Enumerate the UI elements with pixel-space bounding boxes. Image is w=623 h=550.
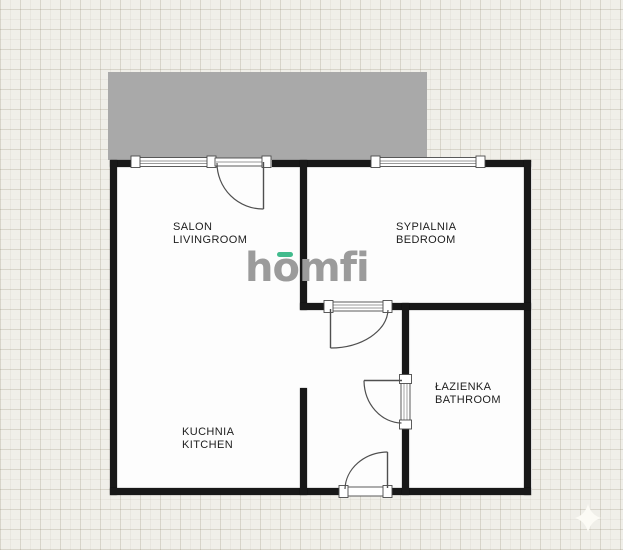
floor-plan-canvas: SALON LIVINGROOM SYPIALNIA BEDROOM ŁAZIE… [0, 0, 623, 550]
wall-left [110, 160, 117, 495]
room-name-en: KITCHEN [182, 439, 234, 452]
room-label-livingroom: SALON LIVINGROOM [173, 221, 247, 246]
wall-bedroom-bottom-left [300, 303, 325, 310]
homfi-logo-watermark: homfi [245, 244, 385, 296]
wall-kitchen-hall-divider [300, 388, 307, 495]
wall-right [524, 160, 531, 495]
wall-bedroom-bottom-right [392, 303, 531, 310]
room-name-pl: SYPIALNIA [396, 221, 456, 234]
room-label-bedroom: SYPIALNIA BEDROOM [396, 221, 456, 246]
wall-bottom-segment-right [392, 488, 531, 495]
apartment-floor [112, 162, 532, 494]
room-name-en: BATHROOM [435, 394, 501, 407]
wall-bathroom-lower [402, 428, 409, 495]
room-name-pl: SALON [173, 221, 247, 234]
sparkle-icon [575, 504, 601, 532]
room-label-bathroom: ŁAZIENKA BATHROOM [435, 381, 501, 406]
homfi-logo-accent-bar [277, 252, 293, 257]
room-label-kitchen: KUCHNIA KITCHEN [182, 426, 234, 451]
room-name-pl: KUCHNIA [182, 426, 234, 439]
homfi-logo-text: homfi [245, 245, 369, 291]
wall-bathroom-upper [402, 303, 409, 376]
room-name-en: LIVINGROOM [173, 234, 247, 247]
balcony-area [108, 72, 427, 160]
room-name-pl: ŁAZIENKA [435, 381, 501, 394]
room-name-en: BEDROOM [396, 234, 456, 247]
wall-top-segment-middle [272, 160, 372, 167]
